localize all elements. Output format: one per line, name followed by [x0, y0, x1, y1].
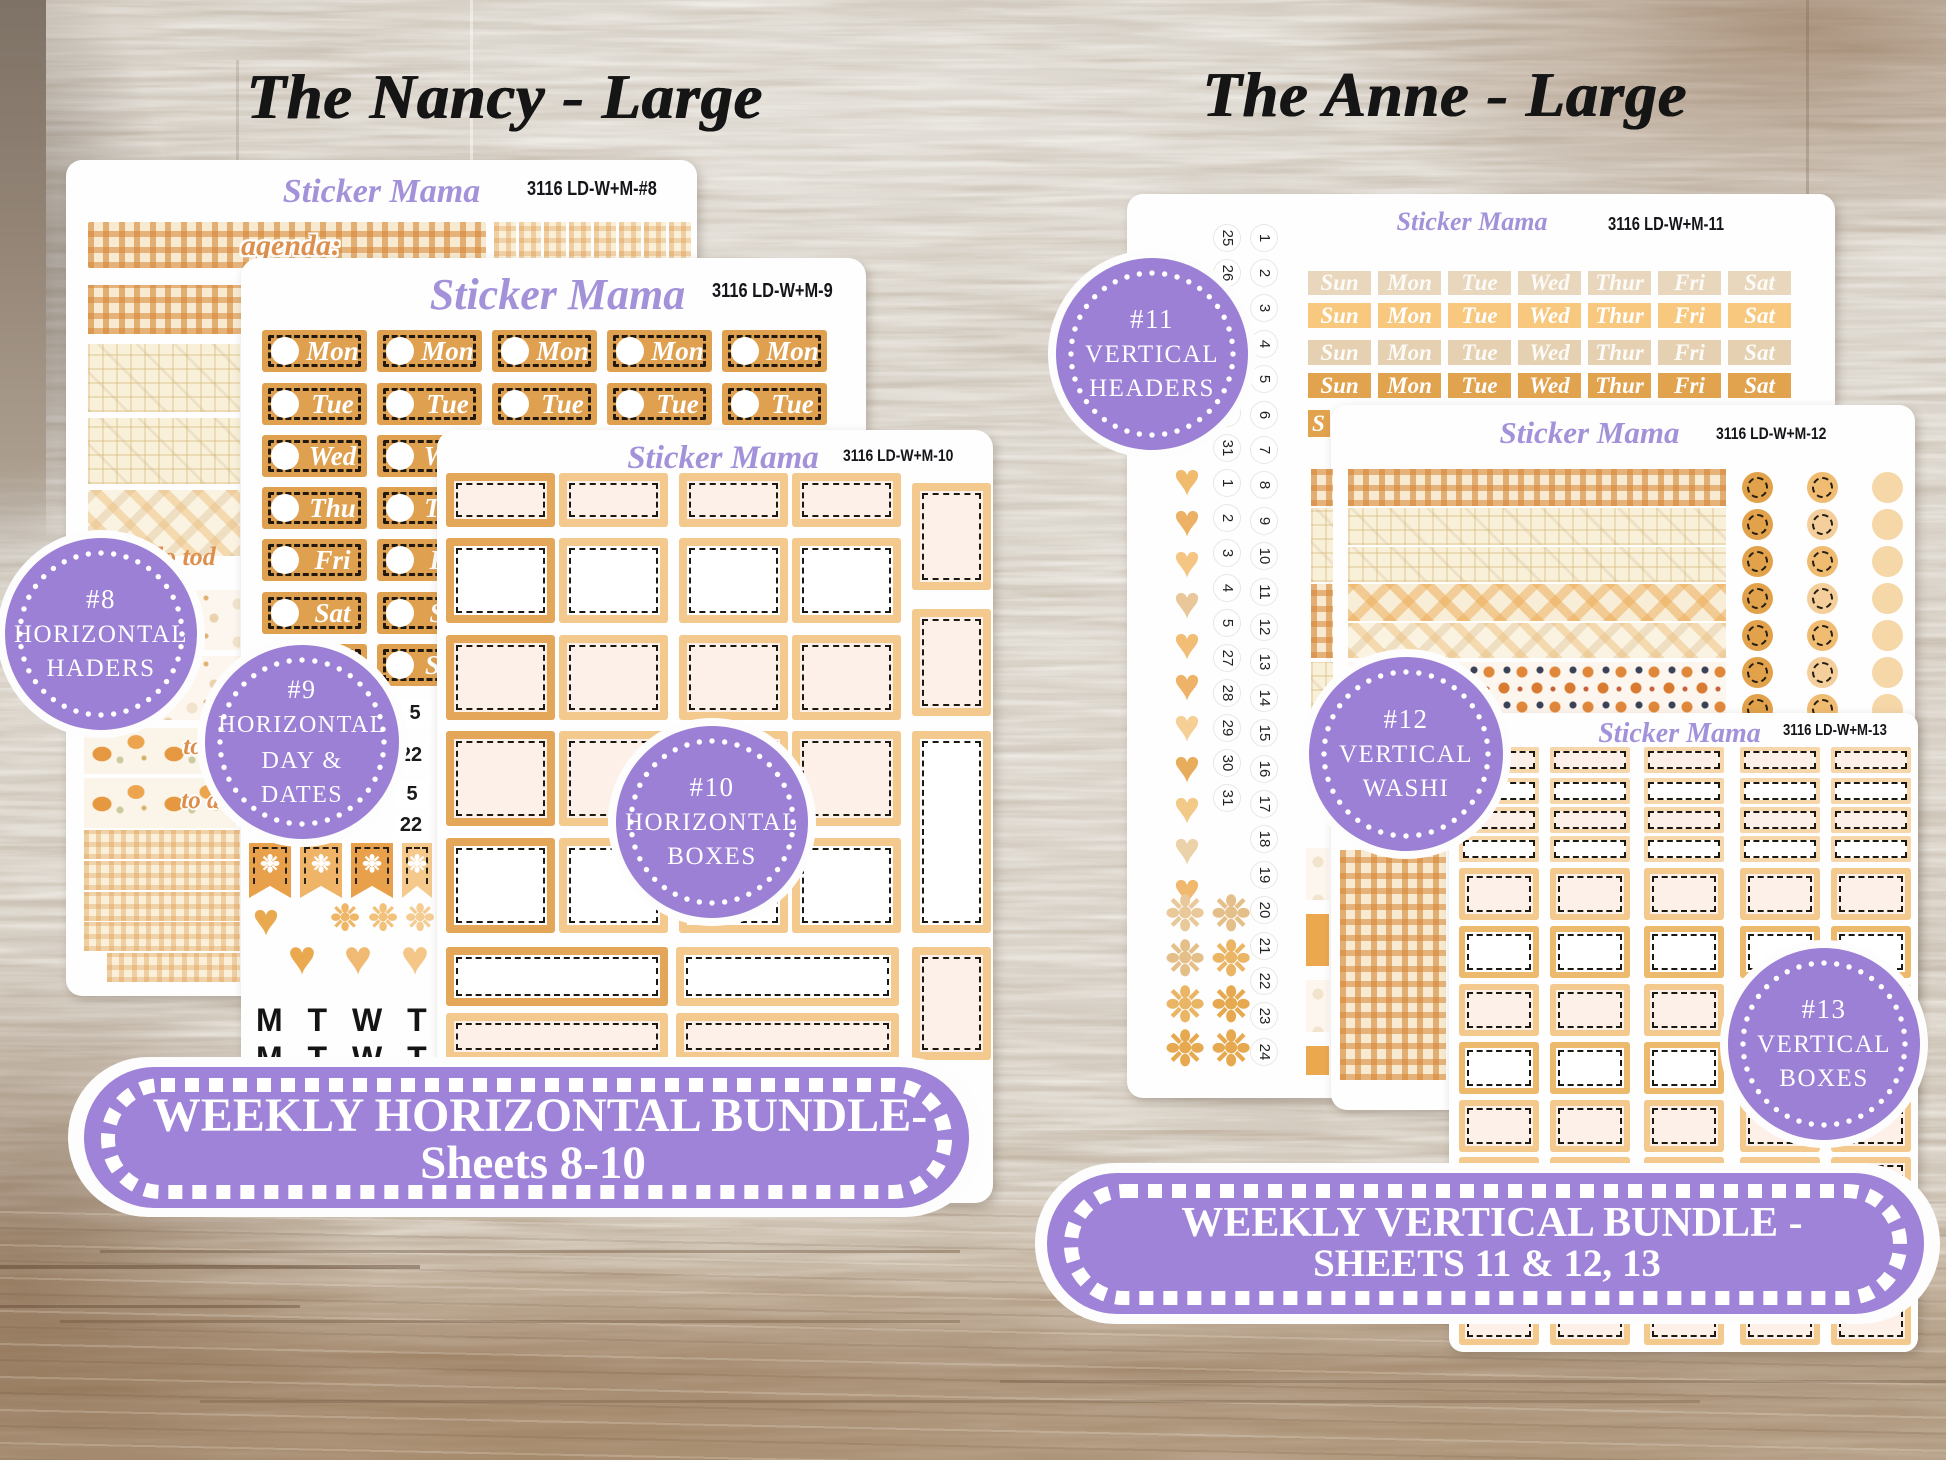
svg-text:WEEKLY VERTICAL BUNDLE -: WEEKLY VERTICAL BUNDLE - — [1181, 1200, 1802, 1246]
svg-text:SHEETS 11 & 12, 13: SHEETS 11 & 12, 13 — [1313, 1242, 1661, 1285]
